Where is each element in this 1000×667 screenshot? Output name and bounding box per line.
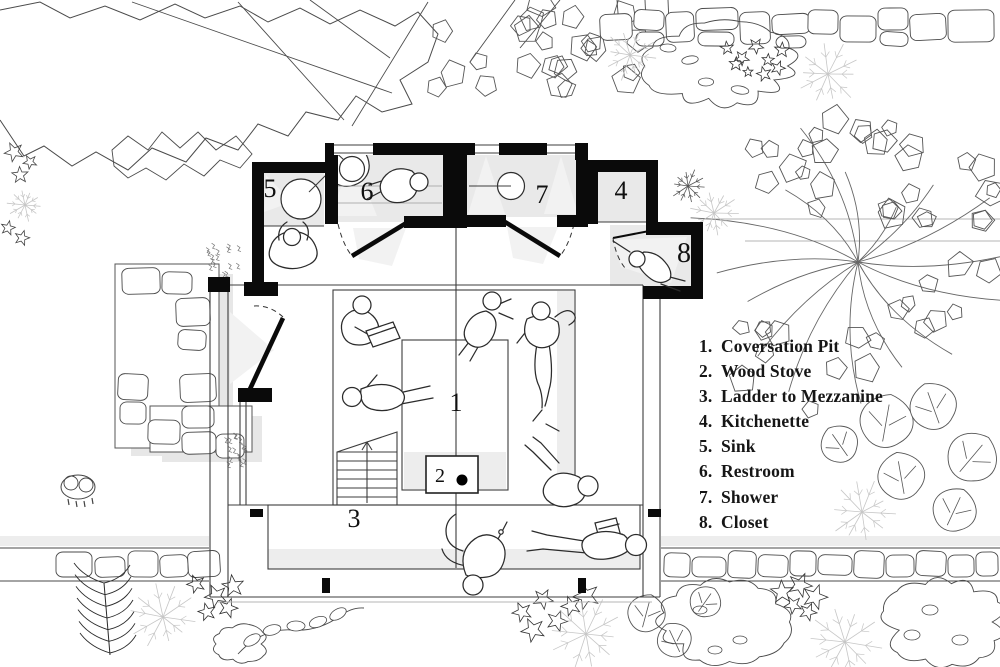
legend: 1. Coversation Pit 2. Wood Stove 3. Ladd… bbox=[699, 336, 883, 537]
person-at-sink bbox=[269, 222, 317, 269]
window-restroom bbox=[334, 143, 373, 155]
room-number-restroom: 6 bbox=[361, 177, 374, 206]
person-lying-left bbox=[343, 375, 434, 411]
window-shower-right bbox=[547, 143, 575, 155]
legend-label: Sink bbox=[721, 436, 756, 457]
legend-label: Closet bbox=[721, 512, 769, 533]
room-number-ladder: 3 bbox=[348, 504, 361, 533]
legend-label: Restroom bbox=[721, 461, 795, 482]
floor-plan-canvas: 1 2 3 4 5 6 7 8 bbox=[0, 0, 1000, 667]
wood-stove bbox=[426, 456, 478, 493]
ladder-to-mezzanine bbox=[337, 432, 397, 505]
legend-item-restroom: 6. Restroom bbox=[699, 461, 883, 486]
legend-number: 7. bbox=[699, 487, 714, 508]
sink-basin bbox=[281, 179, 321, 219]
legend-item-kitchenette: 4. Kitchenette bbox=[699, 411, 883, 436]
legend-item-conversation-pit: 1. Coversation Pit bbox=[699, 336, 883, 361]
legend-item-wood-stove: 2. Wood Stove bbox=[699, 361, 883, 386]
room-number-kitchenette: 4 bbox=[615, 176, 628, 205]
room-number-shower: 7 bbox=[536, 180, 549, 209]
floor-shading bbox=[268, 291, 640, 569]
legend-item-ladder: 3. Ladder to Mezzanine bbox=[699, 386, 883, 411]
legend-number: 1. bbox=[699, 336, 714, 357]
stone-wall-top bbox=[599, 7, 994, 48]
stove-flue-dot bbox=[457, 475, 468, 486]
floor-plan-drawing: 1 2 3 4 5 6 7 8 bbox=[0, 0, 1000, 667]
room-number-sink: 5 bbox=[264, 174, 277, 203]
cabin-building bbox=[208, 143, 703, 602]
legend-label: Ladder to Mezzanine bbox=[721, 386, 883, 407]
person-lying-top bbox=[459, 292, 513, 361]
terrain-lines bbox=[703, 219, 1000, 241]
legend-label: Wood Stove bbox=[721, 361, 811, 382]
room-number-conversation-pit: 1 bbox=[450, 388, 463, 417]
legend-label: Coversation Pit bbox=[721, 336, 839, 357]
legend-label: Kitchenette bbox=[721, 411, 809, 432]
person-with-laptop bbox=[341, 296, 400, 347]
legend-number: 8. bbox=[699, 512, 714, 533]
legend-number: 4. bbox=[699, 411, 714, 432]
window-shower-left bbox=[475, 143, 499, 155]
legend-number: 6. bbox=[699, 461, 714, 482]
legend-item-sink: 5. Sink bbox=[699, 436, 883, 461]
small-rock bbox=[61, 475, 95, 507]
legend-number: 2. bbox=[699, 361, 714, 382]
room-number-wood-stove: 2 bbox=[435, 465, 445, 487]
legend-label: Shower bbox=[721, 487, 778, 508]
legend-item-shower: 7. Shower bbox=[699, 487, 883, 512]
legend-number: 5. bbox=[699, 436, 714, 457]
legend-item-closet: 8. Closet bbox=[699, 512, 883, 537]
room-number-closet: 8 bbox=[677, 238, 691, 269]
legend-number: 3. bbox=[699, 386, 714, 407]
